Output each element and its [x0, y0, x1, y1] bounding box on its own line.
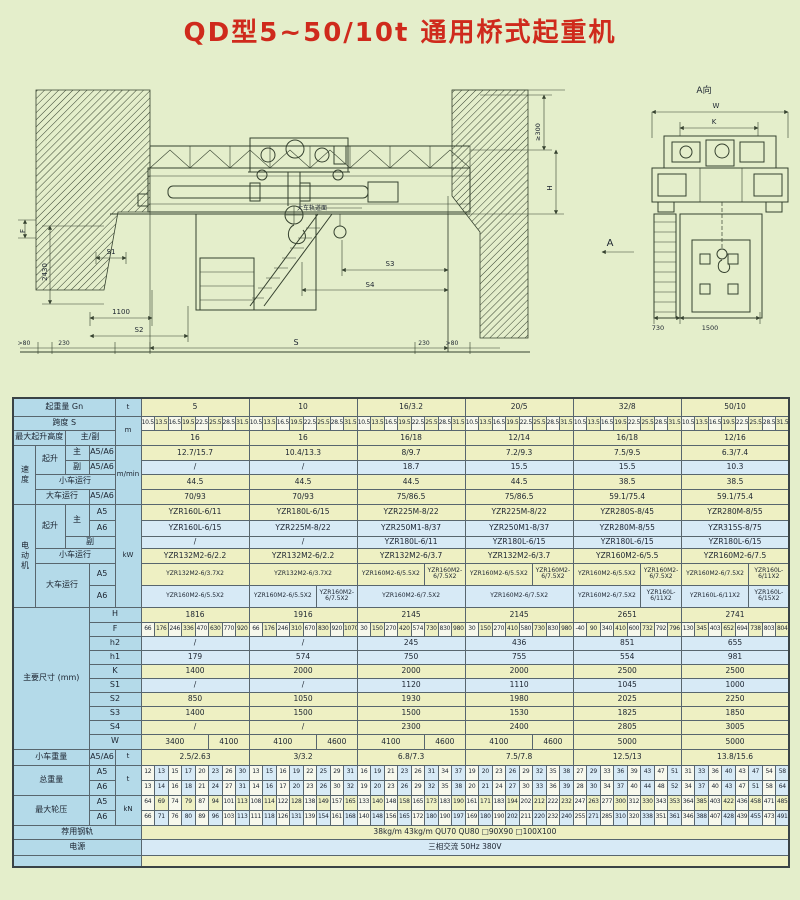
spec-cell: 580 — [519, 622, 533, 636]
unit-label: t — [115, 765, 141, 795]
spec-cell: 36 — [614, 765, 628, 780]
spec-cell: / — [141, 678, 249, 692]
row-label: 主 — [65, 445, 89, 460]
spec-cell: 220 — [533, 810, 547, 825]
spec-cell: 101 — [222, 795, 236, 810]
drawing-label: 730 — [652, 324, 664, 332]
spec-cell: 300 — [614, 795, 628, 810]
spec-cell: 33 — [600, 765, 614, 780]
spec-cell: 20 — [371, 780, 385, 795]
spec-cell: 422 — [722, 795, 736, 810]
spec-cell: 2145 — [357, 607, 465, 622]
spec-cell: 830 — [546, 622, 560, 636]
table-row — [13, 855, 789, 867]
spec-cell: YZR160L-6/15X2 — [749, 585, 790, 607]
spec-cell: 30 — [465, 622, 479, 636]
spec-cell: 149 — [317, 795, 331, 810]
spec-cell: YZR160M2-6/7.5X2 — [357, 585, 465, 607]
spec-cell: YZR160M2-6/7.5 — [681, 548, 789, 563]
spec-cell: 75/86.5 — [465, 489, 573, 504]
spec-cell: 830 — [317, 622, 331, 636]
spec-cell: 330 — [641, 795, 655, 810]
spec-cell: 30 — [236, 765, 250, 780]
drawing-label: >80 — [446, 340, 459, 347]
row-label: A6 — [89, 520, 115, 536]
spec-cell: / — [141, 536, 249, 548]
spec-cell: YZR280S-8/45 — [573, 504, 681, 520]
spec-cell: 148 — [384, 795, 398, 810]
drawing-label: A向 — [696, 84, 711, 96]
spec-cell: 64 — [141, 795, 155, 810]
spec-cell: 312 — [627, 795, 641, 810]
drawing-label: S — [293, 338, 298, 347]
row-label: F — [89, 622, 141, 636]
spec-cell: 113 — [236, 795, 250, 810]
spec-cell: 7.5/7.8 — [465, 749, 573, 765]
spec-cell: YZR250M1-8/37 — [357, 520, 465, 536]
spec-cell: 58 — [776, 765, 790, 780]
spec-cell: 66 — [141, 810, 155, 825]
spec-cell: 28 — [573, 780, 587, 795]
spec-cell: 830 — [438, 622, 452, 636]
spec-cell: YZR132M2-6/3.7 — [357, 548, 465, 563]
spec-cell: 6.3/7.4 — [681, 445, 789, 460]
spec-cell: YZR280M-8/55 — [681, 504, 789, 520]
spec-cell: 44.5 — [141, 474, 249, 489]
spec-cell: 180 — [479, 810, 493, 825]
spec-cell: 38 — [560, 765, 574, 780]
spec-cell: 730 — [533, 622, 547, 636]
spec-cell: 25.5 — [425, 416, 439, 430]
spec-cell: 16 — [357, 765, 371, 780]
spec-cell: 180 — [425, 810, 439, 825]
row-label: A5 — [89, 795, 115, 810]
table-row: h1179574750755554981 — [13, 650, 789, 664]
row-label: 小车重量 — [13, 749, 89, 765]
table-row: 电源三相交流 50Hz 380V — [13, 839, 789, 855]
unit-label: kW — [115, 504, 141, 607]
spec-cell: 246 — [276, 622, 290, 636]
spec-cell: 343 — [654, 795, 668, 810]
spec-cell: 2000 — [249, 664, 357, 678]
spec-cell: 90 — [587, 622, 601, 636]
spec-cell: 670 — [303, 622, 317, 636]
spec-cell: 403 — [708, 622, 722, 636]
spec-cell: YZR160M2-6/7.5X2 — [681, 563, 749, 585]
spec-cell: 76 — [168, 810, 182, 825]
spec-cell: 30 — [519, 780, 533, 795]
spec-cell: 94 — [209, 795, 223, 810]
spec-cell: 471 — [762, 795, 776, 810]
spec-cell: 31.5 — [776, 416, 790, 430]
spec-cell: 1980 — [465, 692, 573, 706]
spec-cell: 25 — [317, 765, 331, 780]
spec-cell: 157 — [330, 795, 344, 810]
spec-cell: 29 — [587, 765, 601, 780]
spec-cell: / — [249, 678, 357, 692]
spec-cell: 212 — [533, 795, 547, 810]
row-label: H — [89, 607, 141, 622]
spec-cell: 190 — [492, 810, 506, 825]
spec-cell: 21 — [479, 780, 493, 795]
spec-cell: 407 — [708, 810, 722, 825]
spec-cell: 36 — [708, 765, 722, 780]
spec-cell: 270 — [384, 622, 398, 636]
spec-cell: YZR132M2-6/3.7X2 — [249, 563, 357, 585]
spec-cell: 30 — [330, 780, 344, 795]
spec-cell: 179 — [141, 650, 249, 664]
spec-cell: 190 — [438, 810, 452, 825]
table-row: S1//1120111010451000 — [13, 678, 789, 692]
unit-label: m — [115, 416, 141, 445]
spec-cell: 1000 — [681, 678, 789, 692]
spec-cell: 16/3.2 — [357, 398, 465, 416]
spec-cell: 361 — [668, 810, 682, 825]
table-row: S285010501930198020252250 — [13, 692, 789, 706]
spec-cell: 44.5 — [249, 474, 357, 489]
spec-cell: 920 — [236, 622, 250, 636]
spec-cell: 34 — [681, 780, 695, 795]
spec-cell: 19 — [371, 765, 385, 780]
row-label: 副 — [65, 460, 89, 474]
drawing-label: 大车轨道面 — [297, 204, 327, 212]
spec-cell: 10.5 — [573, 416, 587, 430]
end-view — [652, 112, 788, 324]
spec-cell: 10.5 — [141, 416, 155, 430]
spec-cell: 491 — [776, 810, 790, 825]
spec-cell: 三相交流 50Hz 380V — [141, 839, 789, 855]
spec-cell: YZR180L-6/15 — [465, 536, 573, 548]
spec-cell: 22.5 — [411, 416, 425, 430]
spec-cell: 38.5 — [681, 474, 789, 489]
spec-cell: 32 — [344, 780, 358, 795]
spec-cell: 165 — [411, 795, 425, 810]
spec-cell: 1400 — [141, 706, 249, 720]
spec-cell: 64 — [776, 780, 790, 795]
spec-cell: 5 — [141, 398, 249, 416]
spec-cell: YZR160M2-6/5.5X2 — [141, 585, 249, 607]
spec-cell: 33 — [695, 765, 709, 780]
spec-cell: 183 — [492, 795, 506, 810]
spec-cell: 47 — [654, 765, 668, 780]
spec-cell: / — [249, 636, 357, 650]
row-label: 总重量 — [13, 765, 89, 795]
row-label: A6 — [89, 810, 115, 825]
spec-cell: YZR132M2-6/2.2 — [141, 548, 249, 563]
spec-cell: 44.5 — [357, 474, 465, 489]
spec-cell: YZR160L-6/11 — [141, 504, 249, 520]
spec-cell: 10.5 — [249, 416, 263, 430]
spec-cell: 792 — [654, 622, 668, 636]
spec-cell: 458 — [749, 795, 763, 810]
spec-cell: 3400 — [141, 734, 209, 749]
spec-cell: YZR280M-8/55 — [573, 520, 681, 536]
spec-cell: YZR160M2-6/7.5X2 — [425, 563, 466, 585]
spec-cell: 980 — [560, 622, 574, 636]
unit-label: t — [115, 749, 141, 765]
spec-cell: 190 — [452, 795, 466, 810]
spec-cell: 20 — [195, 765, 209, 780]
table-row: 总重量A5t1213151720232630131516192225293116… — [13, 765, 789, 780]
spec-cell: 2651 — [573, 607, 681, 622]
spec-cell: 31 — [681, 765, 695, 780]
row-label: 小车运行 — [35, 548, 115, 563]
spec-cell: 89 — [195, 810, 209, 825]
spec-cell: 15 — [168, 765, 182, 780]
spec-cell: 24 — [209, 780, 223, 795]
spec-cell: 165 — [398, 810, 412, 825]
spec-cell: 37 — [614, 780, 628, 795]
spec-cell: 40 — [627, 780, 641, 795]
spec-cell: 17 — [276, 780, 290, 795]
spec-cell: 10.5 — [465, 416, 479, 430]
drawing-label: ≥300 — [534, 123, 542, 141]
spec-cell: 22.5 — [627, 416, 641, 430]
spec-cell: 255 — [573, 810, 587, 825]
spec-cell: 23 — [492, 765, 506, 780]
spec-cell: 29 — [411, 780, 425, 795]
spec-cell: 803 — [762, 622, 776, 636]
spec-cell: 16.5 — [600, 416, 614, 430]
spec-cell: 19 — [357, 780, 371, 795]
spec-cell: 19.5 — [398, 416, 412, 430]
unit-label: t — [115, 398, 141, 416]
spec-cell: 122 — [276, 795, 290, 810]
crane-drawing: F2430S11100S2>80230S230>80大车轨道面S3S4≥300H… — [0, 60, 800, 392]
spec-cell: YZR180L-6/15 — [681, 536, 789, 548]
drawing-label: >80 — [18, 340, 31, 347]
spec-cell: YZR160M2-6/7.5X2 — [533, 563, 574, 585]
row-label: 最大起升高度 — [13, 430, 65, 445]
spec-cell: YZR160M2-6/7.5X2 — [573, 585, 641, 607]
spec-cell: 28.5 — [330, 416, 344, 430]
spec-cell: 12 — [141, 765, 155, 780]
spec-cell: 2300 — [357, 720, 465, 734]
spec-cell: 30 — [357, 622, 371, 636]
spec-cell: 194 — [506, 795, 520, 810]
spec-cell: 31.5 — [560, 416, 574, 430]
spec-cell: 346 — [681, 810, 695, 825]
spec-cell: 23 — [384, 780, 398, 795]
spec-cell: 19 — [290, 765, 304, 780]
spec-cell: 31.5 — [668, 416, 682, 430]
spec-cell: YZR132M2-6/3.7 — [465, 548, 573, 563]
spec-cell: 22.5 — [303, 416, 317, 430]
spec-cell: 37 — [695, 780, 709, 795]
spec-cell: 277 — [600, 795, 614, 810]
row-label: 小车运行 — [35, 474, 115, 489]
spec-cell: 150 — [371, 622, 385, 636]
spec-cell: 113 — [236, 810, 250, 825]
spec-cell: 66 — [141, 622, 155, 636]
row-label: 荐用钢轨 — [13, 825, 141, 839]
spec-cell: 320 — [627, 810, 641, 825]
spec-cell: 75/86.5 — [357, 489, 465, 504]
spec-cell: 1930 — [357, 692, 465, 706]
spec-cell: 14 — [249, 780, 263, 795]
spec-cell: 20/5 — [465, 398, 573, 416]
spec-cell: 32 — [425, 780, 439, 795]
spec-cell: 183 — [438, 795, 452, 810]
spec-cell: 54 — [762, 765, 776, 780]
spec-cell: 13.8/15.6 — [681, 749, 789, 765]
spec-cell: 140 — [371, 795, 385, 810]
spec-cell: 130 — [681, 622, 695, 636]
spec-cell: 336 — [182, 622, 196, 636]
spec-cell: 4600 — [425, 734, 466, 749]
spec-cell: 1850 — [681, 706, 789, 720]
spec-cell: 285 — [600, 810, 614, 825]
spec-cell: 29 — [519, 765, 533, 780]
spec-cell: 5000 — [573, 734, 681, 749]
left-wall-hatch — [36, 90, 150, 290]
spec-cell: 140 — [357, 810, 371, 825]
spec-cell: 26 — [398, 780, 412, 795]
spec-cell: 2000 — [465, 664, 573, 678]
spec-cell: 770 — [222, 622, 236, 636]
spec-cell: 29 — [330, 765, 344, 780]
spec-cell: 154 — [317, 810, 331, 825]
row-label: h2 — [89, 636, 141, 650]
spec-cell: YZR160L-6/11X2 — [641, 585, 682, 607]
row-label: 起升 — [35, 445, 65, 474]
spec-cell: 340 — [600, 622, 614, 636]
spec-cell: 410 — [614, 622, 628, 636]
spec-cell: 1825 — [573, 706, 681, 720]
spec-cell: 23 — [209, 765, 223, 780]
spec-cell: 16.5 — [492, 416, 506, 430]
spec-cell: 40 — [708, 780, 722, 795]
spec-cell: 169 — [465, 810, 479, 825]
drawing-label: A — [607, 238, 614, 249]
spec-cell: YZR225M-8/22 — [357, 504, 465, 520]
row-label: S1 — [89, 678, 141, 692]
spec-cell: 7.5/9.5 — [573, 445, 681, 460]
spec-cell: YZR160M2-6/5.5X2 — [249, 585, 317, 607]
row-label: S4 — [89, 720, 141, 734]
spec-cell: YZR160M2-6/7.5X2 — [465, 585, 573, 607]
spec-cell: 26 — [411, 765, 425, 780]
drawing-label: W — [713, 102, 720, 110]
drawing-label: H — [546, 185, 554, 190]
spec-table: 起重量 Gnt51016/3.220/532/850/10跨度 Sm10.513… — [12, 397, 790, 868]
spec-cell: 470 — [195, 622, 209, 636]
spec-cell: 28.5 — [654, 416, 668, 430]
spec-cell: 804 — [776, 622, 790, 636]
spec-cell: 5000 — [681, 734, 789, 749]
spec-cell: 738 — [749, 622, 763, 636]
spec-cell: / — [141, 636, 249, 650]
spec-cell: 19.5 — [506, 416, 520, 430]
spec-cell: 44.5 — [465, 474, 573, 489]
spec-cell: 351 — [654, 810, 668, 825]
spec-cell: 150 — [479, 622, 493, 636]
spec-cell: 403 — [708, 795, 722, 810]
drawing-label: 2430 — [41, 263, 49, 281]
row-label: 电源 — [13, 839, 141, 855]
spec-cell: 655 — [681, 636, 789, 650]
spec-cell: 17 — [182, 765, 196, 780]
spec-cell: 47 — [735, 780, 749, 795]
spec-cell: 36 — [546, 780, 560, 795]
spec-cell: 1816 — [141, 607, 249, 622]
table-row: S3140015001500153018251850 — [13, 706, 789, 720]
spec-cell: 2025 — [573, 692, 681, 706]
spec-cell: 310 — [614, 810, 628, 825]
spec-cell: 16 — [263, 780, 277, 795]
table-row: F661762463364706307709206617624631067083… — [13, 622, 789, 636]
spec-cell: 263 — [587, 795, 601, 810]
spec-cell: YZR160L-6/15 — [141, 520, 249, 536]
row-label: A6 — [89, 585, 115, 607]
spec-cell: 247 — [573, 795, 587, 810]
spec-cell: 4100 — [249, 734, 317, 749]
row-label: A5/A6 — [89, 749, 115, 765]
table-row: 速度起升主A5/A6m/min12.7/15.710.4/13.38/9.77.… — [13, 445, 789, 460]
spec-cell: 750 — [357, 650, 465, 664]
spec-cell: 4600 — [533, 734, 574, 749]
table-row: 电动机起升主A5kWYZR160L-6/11YZR180L-6/15YZR225… — [13, 504, 789, 520]
spec-cell: 26 — [222, 765, 236, 780]
table-row: K140020002000200025002500 — [13, 664, 789, 678]
spec-cell: 388 — [695, 810, 709, 825]
spec-cell: 16 — [276, 765, 290, 780]
spec-cell: 21 — [195, 780, 209, 795]
spec-cell: 176 — [155, 622, 169, 636]
spec-cell: 128 — [290, 795, 304, 810]
spec-cell: 2.5/2.63 — [141, 749, 249, 765]
spec-cell: 35 — [546, 765, 560, 780]
table-row: 起重量 Gnt51016/3.220/532/850/10 — [13, 398, 789, 416]
row-label: W — [89, 734, 141, 749]
spec-cell: 161 — [330, 810, 344, 825]
table-row: S4//2300240028053005 — [13, 720, 789, 734]
spec-cell: 16 — [249, 430, 357, 445]
spec-cell: 310 — [290, 622, 304, 636]
drawing-label: S4 — [366, 281, 375, 289]
row-label: A5 — [89, 504, 115, 520]
spec-cell: 240 — [560, 810, 574, 825]
spec-cell: 10 — [249, 398, 357, 416]
spec-cell: 730 — [425, 622, 439, 636]
spec-cell: 10.4/13.3 — [249, 445, 357, 460]
spec-cell: / — [141, 720, 249, 734]
spec-cell: 7.2/9.3 — [465, 445, 573, 460]
spec-cell: 38.5 — [573, 474, 681, 489]
spec-cell: 168 — [344, 810, 358, 825]
spec-cell: 2805 — [573, 720, 681, 734]
spec-cell: 37 — [452, 765, 466, 780]
spec-cell: 694 — [735, 622, 749, 636]
spec-cell: 796 — [668, 622, 682, 636]
table-row: W340041004100460041004600410046005000500… — [13, 734, 789, 749]
spec-cell: 165 — [344, 795, 358, 810]
spec-cell: 25.5 — [749, 416, 763, 430]
spec-cell: 18 — [182, 780, 196, 795]
spec-cell: 161 — [465, 795, 479, 810]
spec-cell: 2741 — [681, 607, 789, 622]
spec-cell: 69 — [155, 795, 169, 810]
spec-cell: 12/14 — [465, 430, 573, 445]
spec-cell: 70/93 — [249, 489, 357, 504]
spec-cell: 428 — [722, 810, 736, 825]
spec-cell: 13.5 — [695, 416, 709, 430]
spec-cell: 8/9.7 — [357, 445, 465, 460]
spec-cell: YZR180L-6/15 — [573, 536, 681, 548]
spec-cell: 13 — [249, 765, 263, 780]
unit-label: m/min — [115, 445, 141, 504]
spec-cell: 439 — [735, 810, 749, 825]
